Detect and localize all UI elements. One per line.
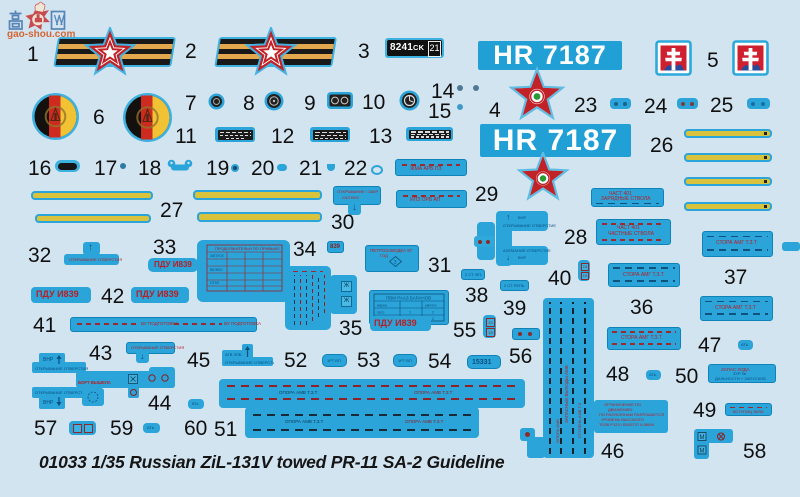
svg-text:ПВМ РААЗ БАРАНОВ: ПВМ РААЗ БАРАНОВ: [386, 296, 431, 301]
svg-text:ОТКРЫВАНИЕ ОТВЕРСТИЯ: ОТКРЫВАНИЕ ОТВЕРСТИЯ: [35, 390, 88, 395]
svg-text:умлотн: умлотн: [425, 304, 437, 308]
svg-text:ВНР: ВНР: [43, 357, 54, 363]
svg-text:ПРОДОЛЖИТЕЛЬН ПО ПРИВЫКЛ: ПРОДОЛЖИТЕЛЬН ПО ПРИВЫКЛ: [215, 246, 280, 251]
svg-text:БОРТ ВЫШЕЛА: БОРТ ВЫШЕЛА: [78, 380, 111, 385]
svg-text:ОТКЛ: ОТКЛ: [210, 281, 220, 285]
svg-text:М: М: [700, 435, 705, 441]
svg-text:марка: марка: [377, 304, 387, 308]
svg-text:ОТКРЫВАНИЕ ОТВЕРСТИЯ: ОТКРЫВАНИЕ ОТВЕРСТИЯ: [225, 360, 274, 365]
svg-text:АТВ ЗПБ: АТВ ЗПБ: [225, 352, 242, 357]
svg-text:ОТКРЫВАНИЕ ОТВЕРСТИЯ: ОТКРЫВАНИЕ ОТВЕРСТИЯ: [35, 366, 88, 371]
svg-text:ВКЛЮЧ: ВКЛЮЧ: [210, 268, 223, 272]
svg-text:2: 2: [432, 317, 434, 321]
svg-text:З: З: [394, 260, 397, 266]
svg-text:М: М: [700, 449, 705, 455]
svg-text:2: 2: [432, 311, 434, 315]
svg-text:1: 1: [409, 311, 411, 315]
svg-text:лето: лето: [377, 311, 384, 315]
svg-text:ВНР: ВНР: [43, 400, 54, 406]
svg-text:ЗАПУСК: ЗАПУСК: [210, 254, 225, 258]
